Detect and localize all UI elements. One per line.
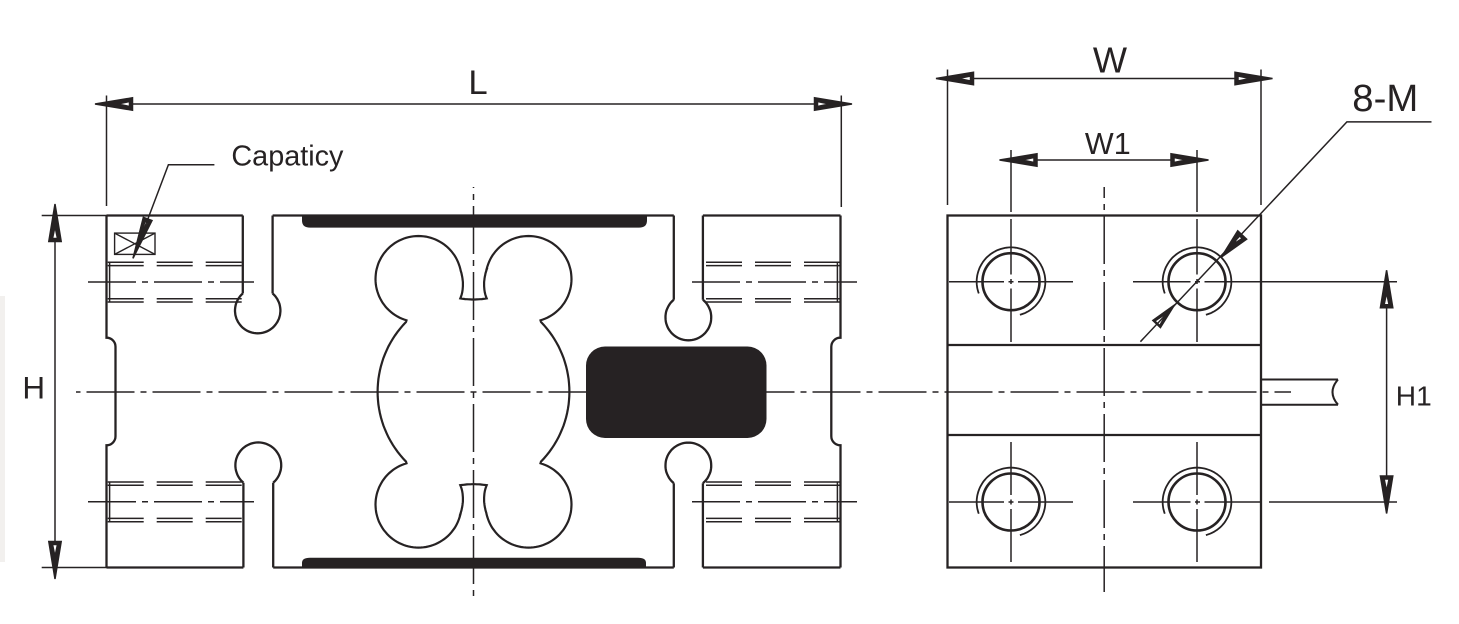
svg-text:W1: W1 <box>1085 127 1131 161</box>
svg-text:H: H <box>22 371 45 406</box>
svg-text:Capaticy: Capaticy <box>231 140 344 172</box>
svg-text:L: L <box>468 64 487 102</box>
svg-text:H1: H1 <box>1396 380 1432 411</box>
svg-text:8-M: 8-M <box>1352 77 1418 120</box>
svg-text:W: W <box>1093 39 1128 80</box>
